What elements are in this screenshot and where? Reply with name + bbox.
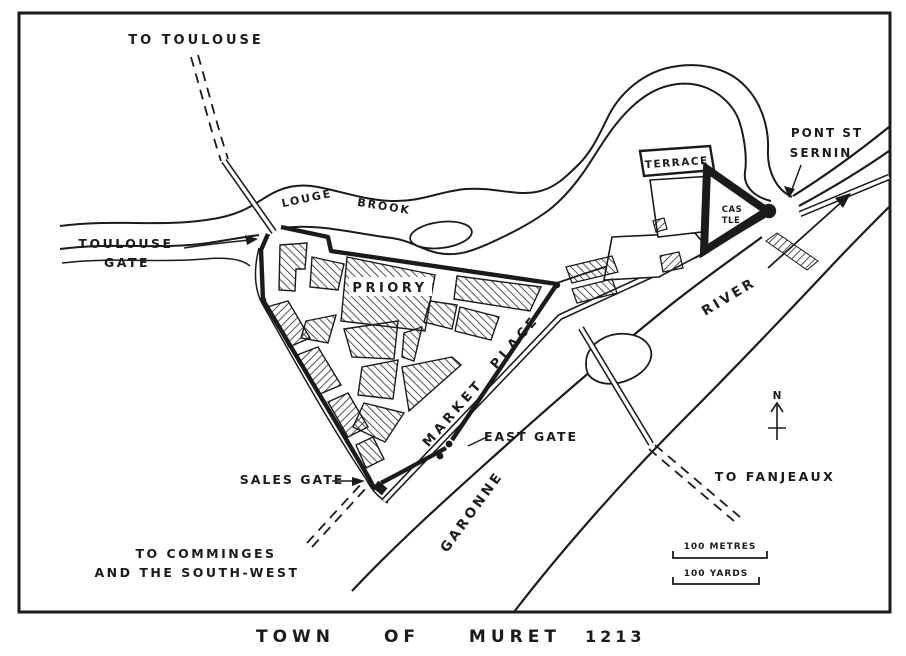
toulouse-gate-label-line2: GATE <box>104 255 150 270</box>
north-label: N <box>773 390 782 402</box>
town-east-corner-dot <box>554 282 560 288</box>
suburb-block <box>660 252 683 272</box>
toulouse-gate-label-line1: TOULOUSE <box>78 236 173 251</box>
to-fanjeaux-label: TO FANJEAUX <box>715 469 836 484</box>
wall-corner-dot <box>260 297 266 303</box>
to-toulouse-label: TO TOULOUSE <box>128 33 264 48</box>
castle-label-line1: CAS <box>722 205 742 215</box>
scale-yards-label: 100 YARDS <box>684 569 748 579</box>
pont-st-sernin-label-line2: SERNIN <box>790 146 853 160</box>
map-title: TOWN OF MURET 1213 <box>256 627 646 647</box>
east-gate-label: EAST GATE <box>484 429 578 444</box>
castle-label-line2: TLE <box>722 216 741 226</box>
map-canvas: PRIORY TERRACE CAS TLE TO TOULOUSE <box>0 0 906 656</box>
map-title-text: TOWN OF MURET <box>256 627 561 647</box>
map-title-year: 1213 <box>585 627 646 646</box>
pont-st-sernin-label-line1: PONT ST <box>791 126 863 140</box>
terrace-building <box>653 218 667 232</box>
castle-tower-dot <box>762 204 776 218</box>
east-gate-dot <box>437 453 444 460</box>
to-comminges-label-line2: AND THE SOUTH-WEST <box>95 565 300 580</box>
scale-metres-label: 100 METRES <box>684 542 757 552</box>
to-comminges-label-line1: TO COMMINGES <box>135 546 276 561</box>
east-gate-dot <box>446 441 453 448</box>
sales-gate-label: SALES GATE <box>240 472 345 487</box>
priory-label: PRIORY <box>352 281 427 296</box>
muret-historic-map: PRIORY TERRACE CAS TLE TO TOULOUSE <box>0 0 906 656</box>
